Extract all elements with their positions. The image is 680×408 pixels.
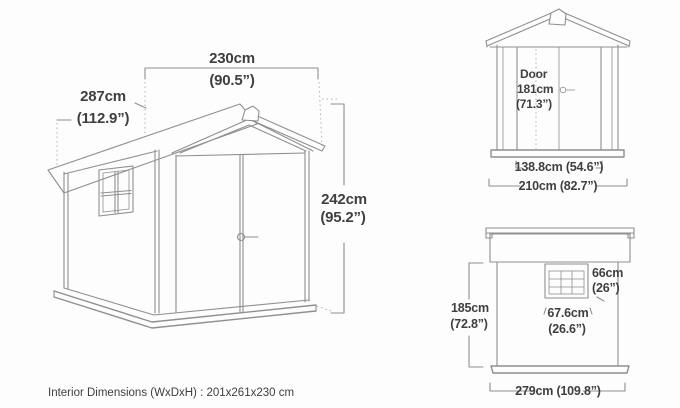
- front-door-handle-icon: [560, 87, 575, 93]
- wall-height-dimension: 185cm (72.8”): [450, 263, 489, 367]
- diagram-canvas: 230cm (90.5”) 287cm (112.9”) 242cm (95.2…: [0, 0, 680, 408]
- window-width-imperial-label: (26.6”): [548, 322, 586, 336]
- wall-height-imperial-label: (72.8”): [450, 317, 488, 331]
- front-overall-width-dimension: 210cm (82.7”): [489, 179, 627, 193]
- width-imperial-label: (90.5”): [209, 72, 254, 89]
- door-label: Door: [520, 67, 548, 81]
- front-overall-width-label: 210cm (82.7”): [519, 179, 598, 193]
- shed-front-wall: [176, 151, 309, 312]
- wall-height-metric-label: 185cm: [451, 301, 489, 315]
- side-window-icon: [99, 166, 133, 216]
- door-width-label: 138.8cm (54.6”): [515, 160, 604, 174]
- side-overall-depth-dimension: 279cm (109.8”): [490, 383, 625, 398]
- window-height-dimension: 66cm (26”): [592, 266, 623, 301]
- perspective-view: 230cm (90.5”) 287cm (112.9”) 242cm (95.2…: [48, 50, 367, 328]
- front-door-dimension: Door 181cm (71.3”): [516, 67, 553, 111]
- front-door-width-dimension: 138.8cm (54.6”): [515, 160, 604, 174]
- depth-dimension: 287cm (112.9”): [57, 88, 146, 168]
- shed-base: [54, 288, 316, 328]
- shed-dimensions-diagram: 230cm (90.5”) 287cm (112.9”) 242cm (95.2…: [0, 0, 680, 408]
- depth-metric-label: 287cm: [80, 88, 126, 105]
- width-metric-label: 230cm: [209, 50, 255, 67]
- window-height-metric-label: 66cm: [592, 266, 623, 280]
- height-dimension: 242cm (95.2”): [317, 104, 367, 313]
- interior-dimensions-note: Interior Dimensions (WxDxH) : 201x261x23…: [48, 387, 294, 399]
- front-view: Door 181cm (71.3”) 138.8cm (54.6”) 210cm…: [486, 9, 630, 193]
- side-view-window-icon: [545, 264, 588, 298]
- depth-imperial-label: (112.9”): [77, 110, 130, 127]
- window-height-imperial-label: (26”): [592, 281, 620, 295]
- door-height-imperial-label: (71.3”): [516, 97, 552, 111]
- window-width-metric-label: 67.6cm: [547, 306, 588, 320]
- side-view-drawing: [486, 228, 634, 373]
- height-imperial-label: (95.2”): [320, 209, 365, 226]
- front-finial-icon: [549, 9, 566, 25]
- shed-3d-drawing: [48, 104, 325, 328]
- shed-side-wall: [64, 150, 159, 313]
- door-handle-icon: [238, 234, 259, 241]
- width-dimension: 230cm (90.5”): [145, 50, 339, 146]
- height-metric-label: 242cm: [321, 191, 367, 208]
- door-height-metric-label: 181cm: [517, 82, 553, 96]
- side-view: 66cm (26”) 67.6cm (26.6”) 185cm (72.8”) …: [450, 228, 634, 398]
- window-width-dimension: 67.6cm (26.6”): [544, 306, 592, 336]
- front-view-drawing: [486, 9, 630, 157]
- side-overall-depth-label: 279cm (109.8”): [515, 384, 600, 398]
